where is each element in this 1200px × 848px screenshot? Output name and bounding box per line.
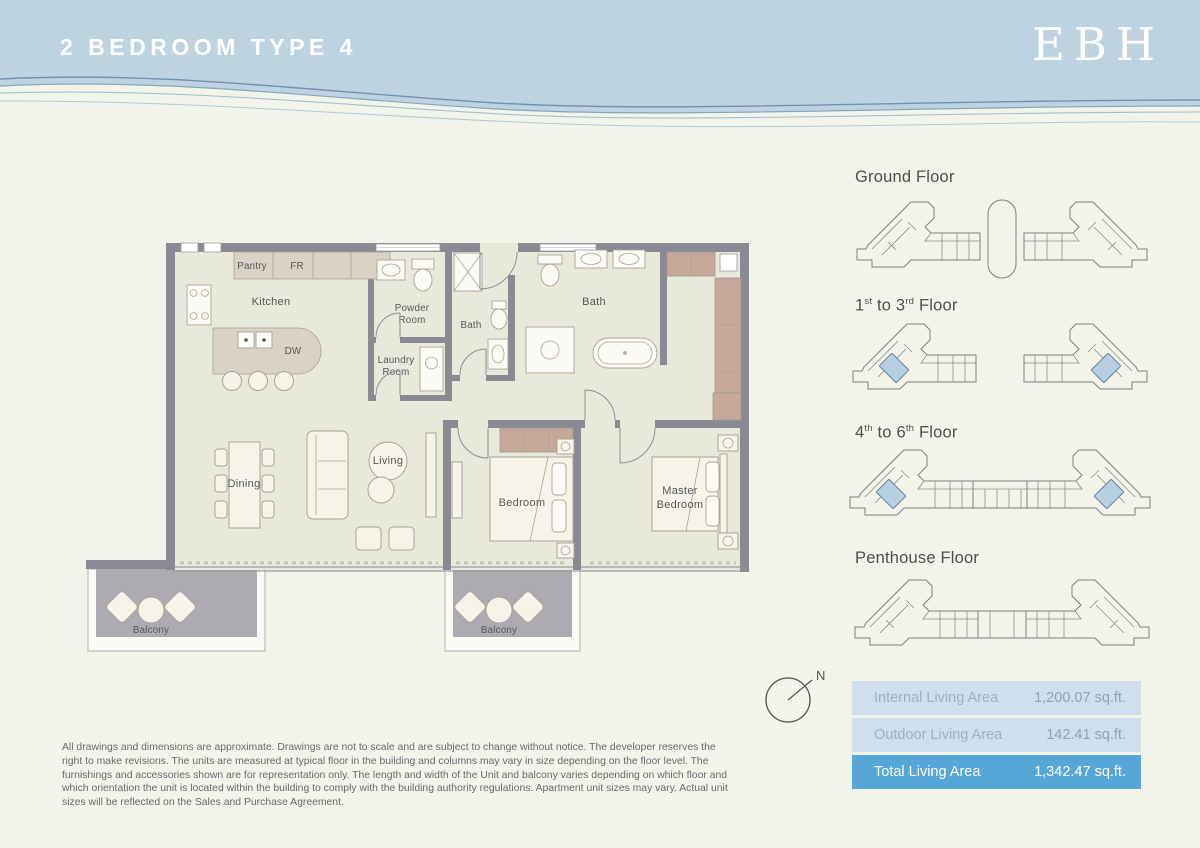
page-title: 2 BEDROOM TYPE 4: [60, 34, 357, 61]
dresser: [452, 462, 462, 518]
vanity-sink: [575, 250, 607, 268]
north-label: N: [816, 668, 825, 683]
disclaimer-text: All drawings and dimensions are approxim…: [62, 741, 738, 810]
balcony-left: Balcony: [88, 569, 265, 651]
area-label: Outdoor Living Area: [874, 727, 1002, 743]
highlighted-unit: [876, 479, 906, 509]
page-header: 2 BEDROOM TYPE 4 EBH: [0, 0, 1200, 136]
area-row-outdoor: Outdoor Living Area 142.41 sq.ft.: [852, 718, 1141, 752]
side-table: [368, 477, 394, 503]
floor-plan: Balcony Balcony: [60, 235, 760, 665]
pillow: [552, 500, 566, 532]
north-compass: N: [750, 662, 840, 742]
balcony-table: [138, 597, 164, 623]
pillow: [706, 496, 719, 526]
room-label-living: Living: [373, 455, 404, 467]
level-label-ground: Ground Floor: [855, 168, 955, 187]
highlighted-unit: [879, 353, 909, 383]
pillow: [706, 462, 719, 492]
room-label-master-1: Master: [662, 485, 697, 497]
room-label-powder-1: Powder: [395, 303, 430, 314]
room-label-bath-guest: Bath: [461, 320, 482, 331]
level-label-penthouse: Penthouse Floor: [855, 549, 979, 568]
level-label-1-3: 1st to 3rd Floor: [855, 296, 958, 316]
toilet: [541, 264, 559, 286]
vanity-sink: [377, 260, 405, 280]
key-plan-penthouse-floor: [852, 570, 1152, 655]
key-plan-1-3-floor: [850, 318, 1150, 398]
toilet-tank: [412, 259, 434, 269]
room-label-balcony-right: Balcony: [481, 625, 517, 636]
nightstand: [718, 435, 738, 451]
nightstand: [557, 543, 574, 558]
room-label-pantry: Pantry: [237, 261, 267, 272]
dining-chair: [262, 475, 274, 492]
stool: [249, 372, 268, 391]
header-wave-graphic: [0, 0, 1200, 136]
highlighted-unit: [1094, 479, 1124, 509]
nightstand: [718, 533, 738, 549]
area-value: 1,200.07 sq.ft.: [1034, 690, 1126, 706]
toilet: [414, 269, 432, 291]
area-label: Total Living Area: [874, 764, 980, 780]
area-row-total: Total Living Area 1,342.47 sq.ft.: [852, 755, 1141, 789]
room-label-balcony-left: Balcony: [133, 625, 169, 636]
room-label-powder-2: Room: [399, 315, 426, 326]
room-label-laundry-1: Laundry: [378, 355, 415, 366]
headboard: [720, 454, 727, 534]
dining-chair: [215, 475, 227, 492]
room-label-bath-master: Bath: [582, 296, 606, 308]
toilet-tank: [492, 301, 506, 309]
balcony-right: Balcony: [445, 569, 580, 651]
column: [720, 254, 737, 271]
armchair: [389, 527, 414, 550]
vanity-sink: [488, 339, 508, 369]
room-label-kitchen: Kitchen: [252, 296, 291, 308]
level-label-4-6: 4th to 6th Floor: [855, 423, 958, 443]
stool: [223, 372, 242, 391]
key-plan-4-6-floor: [845, 446, 1155, 521]
room-label-bedroom: Bedroom: [499, 497, 546, 509]
stool: [275, 372, 294, 391]
north-arrow: [788, 680, 812, 700]
pool: [988, 200, 1016, 278]
dining-chair: [215, 449, 227, 466]
tv-console: [426, 433, 436, 517]
pillow: [552, 463, 566, 495]
sofa: [307, 431, 348, 519]
toilet-tank: [538, 255, 562, 264]
toilet: [491, 309, 507, 329]
key-plan-ground-floor: [852, 190, 1152, 285]
highlighted-unit: [1091, 353, 1121, 383]
area-value: 1,342.47 sq.ft.: [1034, 764, 1126, 780]
area-label: Internal Living Area: [874, 690, 998, 706]
room-label-master-2: Bedroom: [657, 499, 704, 511]
dining-area: Dining: [215, 442, 274, 528]
balcony-table: [486, 597, 512, 623]
dining-chair: [262, 449, 274, 466]
dining-chair: [215, 501, 227, 518]
brand-logo: EBH: [1032, 18, 1162, 71]
armchair: [356, 527, 381, 550]
vanity-sink: [613, 250, 645, 268]
nightstand: [557, 439, 574, 454]
shower: [526, 327, 574, 373]
area-value: 142.41 sq.ft.: [1046, 727, 1126, 743]
room-label-dining: Dining: [228, 478, 261, 490]
dining-chair: [262, 501, 274, 518]
brochure-page: 2 BEDROOM TYPE 4 EBH Balcony Balcony: [0, 0, 1200, 848]
room-label-laundry-2: Room: [383, 367, 410, 378]
room-label-dw: DW: [285, 346, 302, 357]
area-row-internal: Internal Living Area 1,200.07 sq.ft.: [852, 681, 1141, 715]
room-label-fr: FR: [290, 261, 303, 272]
